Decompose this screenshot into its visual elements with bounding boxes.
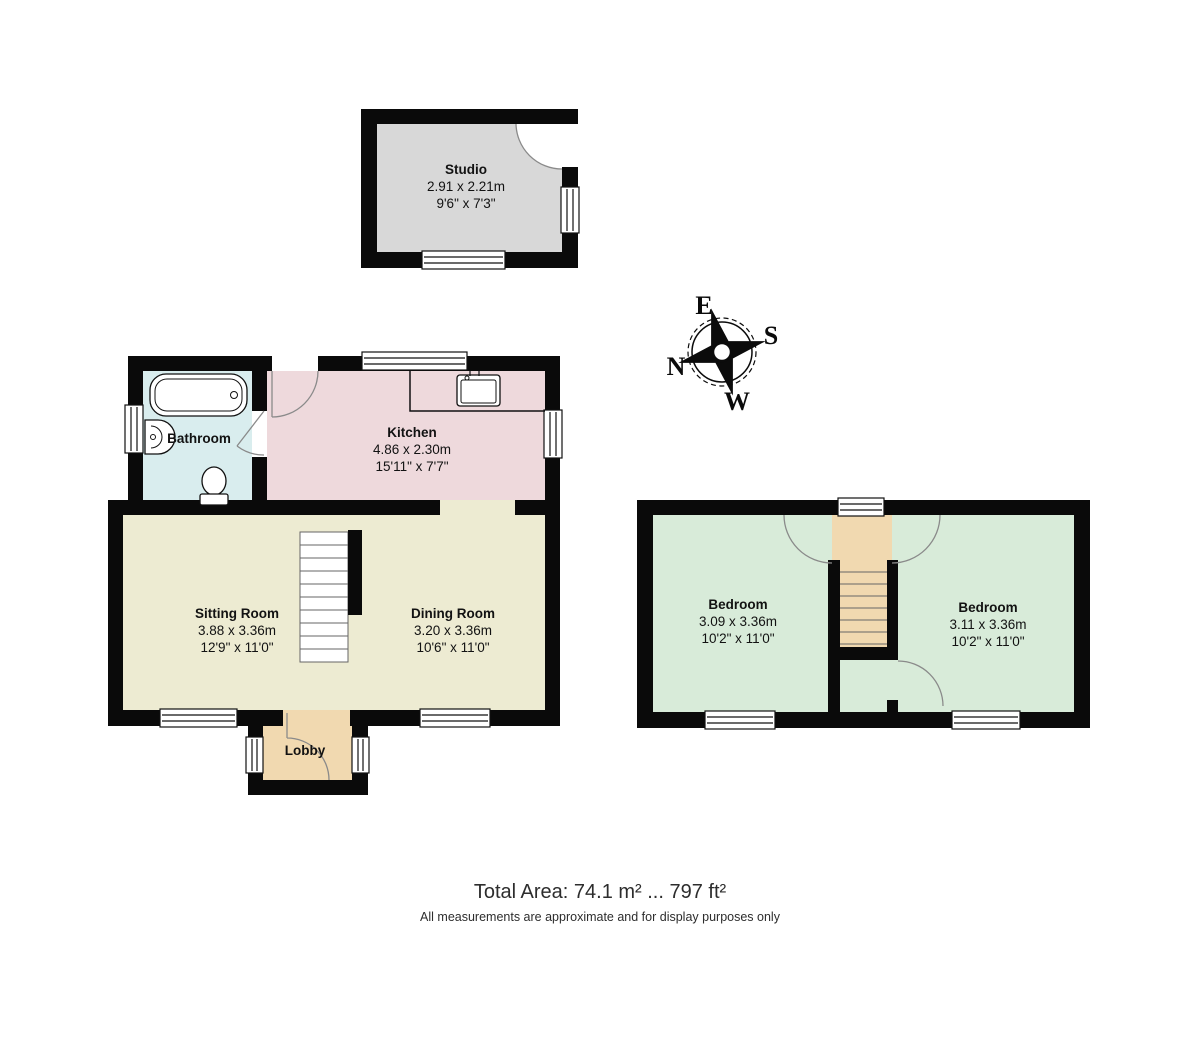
sitting-room-label: Sitting Room 3.88 x 3.36m 12'9" x 11'0" [195, 605, 279, 656]
room-metric-dims: 3.88 x 3.36m [195, 622, 279, 639]
room-name-label: Bathroom [167, 430, 231, 447]
kitchen-label: Kitchen 4.86 x 2.30m 15'11" x 7'7" [373, 424, 451, 475]
room-metric-dims: 4.86 x 2.30m [373, 441, 451, 458]
room-name-label: Kitchen [373, 424, 451, 441]
staircase-ground [300, 532, 348, 662]
compass-north-label: N [667, 352, 686, 382]
room-imperial-dims: 10'2" x 11'0" [699, 630, 777, 647]
staircase-upper [840, 560, 887, 647]
room-metric-dims: 3.11 x 3.36m [949, 616, 1026, 633]
compass-east-label: E [695, 291, 712, 321]
room-name-label: Bedroom [699, 596, 777, 613]
compass-south-label: S [764, 321, 778, 351]
room-imperial-dims: 12'9" x 11'0" [195, 639, 279, 656]
floorplan-canvas: Studio 2.91 x 2.21m 9'6" x 7'3" Bathroom… [0, 0, 1200, 1040]
lobby-opening [283, 710, 350, 726]
compass-west-label: W [724, 387, 750, 417]
disclaimer-text: All measurements are approximate and for… [420, 910, 780, 924]
studio-label: Studio 2.91 x 2.21m 9'6" x 7'3" [427, 161, 505, 212]
stair-landing [832, 515, 892, 560]
room-imperial-dims: 10'6" x 11'0" [411, 639, 495, 656]
room-name-label: Dining Room [411, 605, 495, 622]
room-imperial-dims: 15'11" x 7'7" [373, 458, 451, 475]
bedroom-right-label: Bedroom 3.11 x 3.36m 10'2" x 11'0" [949, 599, 1026, 650]
room-name-label: Studio [427, 161, 505, 178]
lobby-label: Lobby [285, 742, 326, 759]
bathroom-label: Bathroom [167, 430, 231, 447]
room-imperial-dims: 10'2" x 11'0" [949, 633, 1026, 650]
room-metric-dims: 3.09 x 3.36m [699, 613, 777, 630]
room-name-label: Sitting Room [195, 605, 279, 622]
room-imperial-dims: 9'6" x 7'3" [427, 195, 505, 212]
toilet-icon [202, 467, 226, 495]
room-name-label: Bedroom [949, 599, 1026, 616]
total-area-text: Total Area: 74.1 m² ... 797 ft² [474, 881, 726, 904]
room-name-label: Lobby [285, 742, 326, 759]
room-metric-dims: 3.20 x 3.36m [411, 622, 495, 639]
ground-floor-plan [108, 352, 562, 795]
room-metric-dims: 2.91 x 2.21m [427, 178, 505, 195]
kitchen-dining-opening [440, 500, 515, 515]
bedroom-left-label: Bedroom 3.09 x 3.36m 10'2" x 11'0" [699, 596, 777, 647]
dining-room-label: Dining Room 3.20 x 3.36m 10'6" x 11'0" [411, 605, 495, 656]
